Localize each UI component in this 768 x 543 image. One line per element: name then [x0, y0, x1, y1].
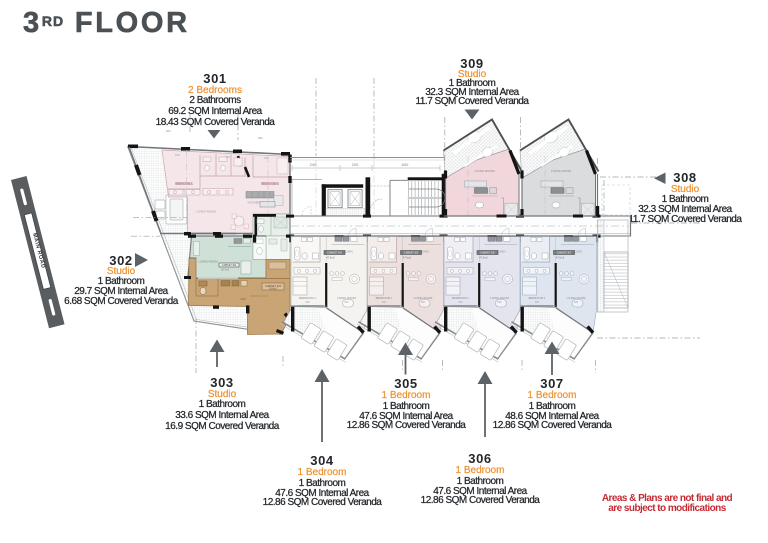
svg-text:520: 520 [421, 301, 426, 304]
svg-text:LIVING ROOM: LIVING ROOM [474, 169, 495, 173]
svg-text:47.6m2: 47.6m2 [326, 257, 335, 260]
svg-text:CABINET 304: CABINET 304 [327, 252, 342, 255]
svg-text:200: 200 [352, 162, 359, 167]
svg-text:300: 300 [458, 301, 463, 304]
svg-text:160: 160 [264, 156, 269, 160]
svg-text:KITCHEN: KITCHEN [248, 201, 261, 205]
svg-text:520: 520 [497, 301, 502, 304]
svg-text:47.6m2: 47.6m2 [403, 257, 412, 260]
svg-text:BEDROOM 1: BEDROOM 1 [452, 296, 469, 300]
svg-text:240: 240 [175, 153, 180, 157]
svg-text:520: 520 [574, 301, 579, 304]
svg-text:390: 390 [258, 136, 263, 140]
svg-text:33.6m2: 33.6m2 [269, 288, 278, 291]
svg-text:LIVING ROOM: LIVING ROOM [414, 296, 433, 300]
svg-text:LIVING ROOM: LIVING ROOM [551, 169, 572, 173]
svg-text:300: 300 [382, 301, 387, 304]
svg-text:LIVING ROOM: LIVING ROOM [567, 296, 586, 300]
svg-text:CABINET 307: CABINET 307 [557, 252, 572, 255]
svg-text:600: 600 [402, 162, 409, 167]
svg-text:300: 300 [535, 301, 540, 304]
svg-text:29.7m2: 29.7m2 [221, 269, 230, 272]
svg-text:600: 600 [166, 129, 171, 133]
svg-text:300: 300 [305, 301, 310, 304]
svg-text:CABINET 302: CABINET 302 [222, 264, 237, 267]
svg-text:BEDROOM 2: BEDROOM 2 [261, 182, 279, 186]
svg-text:CABINET 305: CABINET 305 [404, 252, 419, 255]
svg-text:240: 240 [240, 297, 245, 301]
svg-text:BEDROOM 1: BEDROOM 1 [376, 296, 393, 300]
svg-text:LIVING ROOM: LIVING ROOM [196, 210, 216, 214]
svg-text:520: 520 [344, 301, 349, 304]
svg-text:LIVING ROOM: LIVING ROOM [198, 260, 218, 264]
svg-text:BEDROOM 1: BEDROOM 1 [299, 296, 316, 300]
svg-text:BEDROOM 1: BEDROOM 1 [175, 182, 193, 186]
svg-text:CABINET 306: CABINET 306 [480, 252, 495, 255]
svg-text:LIVING ROOM: LIVING ROOM [337, 296, 356, 300]
svg-text:47.6m2: 47.6m2 [556, 257, 565, 260]
svg-text:BEDROOM 1: BEDROOM 1 [529, 296, 546, 300]
svg-text:47.6m2: 47.6m2 [479, 257, 488, 260]
svg-text:LIVING ROOM: LIVING ROOM [490, 296, 509, 300]
